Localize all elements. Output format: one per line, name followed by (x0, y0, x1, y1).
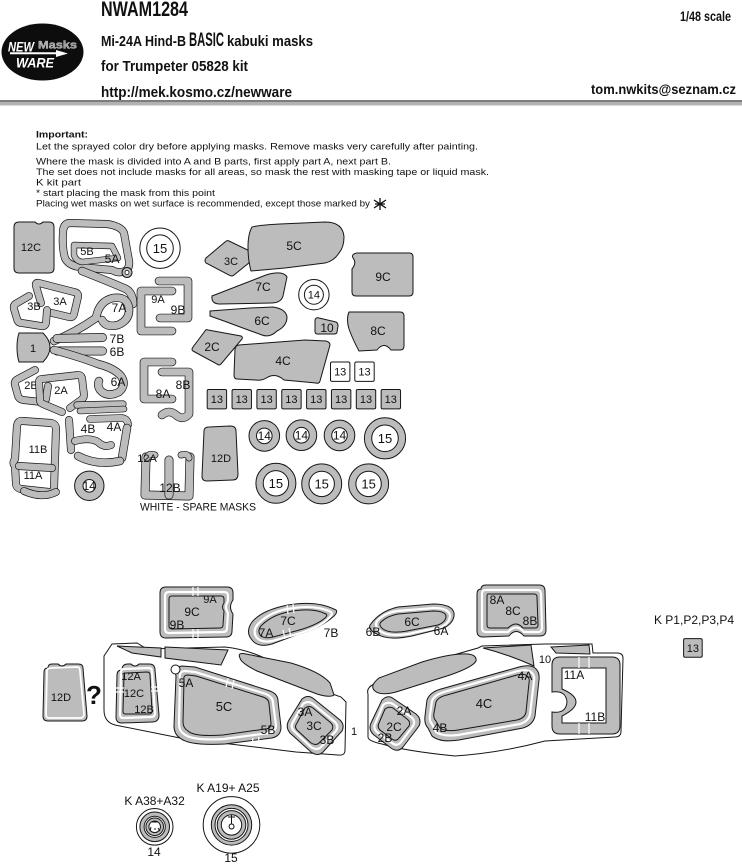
svg-text:8B: 8B (523, 614, 538, 628)
svg-text:13: 13 (260, 394, 272, 406)
svg-text:13: 13 (358, 367, 370, 379)
svg-text:11A: 11A (564, 668, 584, 682)
svg-text:Where the mask is divided into: Where the mask is divided into A and B p… (36, 157, 391, 167)
svg-text:4C: 4C (476, 696, 493, 711)
svg-text:Mi-24A Hind-B: Mi-24A Hind-B (101, 33, 186, 50)
svg-text:for Trumpeter 05828 kit: for Trumpeter 05828 kit (101, 58, 248, 75)
svg-text:7C: 7C (280, 614, 296, 628)
svg-text:9C: 9C (184, 605, 200, 619)
svg-text:2A: 2A (54, 385, 68, 397)
svg-text:3B: 3B (320, 733, 335, 747)
svg-text:WHITE - SPARE MASKS: WHITE - SPARE MASKS (140, 502, 256, 514)
svg-text:2A: 2A (397, 704, 412, 718)
svg-text:13: 13 (285, 394, 297, 406)
svg-text:kabuki masks: kabuki masks (227, 33, 313, 50)
svg-text:12D: 12D (51, 692, 71, 704)
svg-text:13: 13 (236, 394, 248, 406)
svg-text:13: 13 (334, 367, 346, 379)
svg-text:14: 14 (333, 429, 347, 443)
svg-text:8A: 8A (156, 387, 171, 401)
svg-text:K P1,P2,P3,P4: K P1,P2,P3,P4 (654, 613, 734, 627)
svg-text:9A: 9A (151, 294, 165, 306)
svg-text:6A: 6A (111, 375, 126, 389)
svg-text:14: 14 (258, 429, 272, 443)
svg-text:Important:: Important: (36, 130, 88, 140)
svg-text:4C: 4C (275, 354, 291, 368)
svg-text:15: 15 (378, 431, 392, 446)
svg-text:13: 13 (687, 643, 699, 655)
svg-text:10: 10 (539, 654, 551, 666)
svg-text:1/48 scale: 1/48 scale (680, 8, 731, 24)
svg-text:3C: 3C (306, 719, 322, 733)
svg-text:4B: 4B (81, 422, 96, 436)
svg-text:14: 14 (83, 479, 97, 493)
svg-text:12B: 12B (159, 481, 180, 495)
svg-text:6C: 6C (404, 615, 420, 629)
svg-text:4B: 4B (433, 721, 448, 735)
svg-text:Placing wet masks on wet surfa: Placing wet masks on wet surface is reco… (36, 199, 370, 209)
svg-text:1: 1 (30, 343, 36, 355)
svg-text:12A: 12A (137, 453, 157, 465)
svg-text:9B: 9B (171, 303, 186, 317)
svg-text:7A: 7A (112, 301, 127, 315)
svg-text:14: 14 (308, 290, 320, 302)
svg-text:BASIC: BASIC (189, 30, 224, 51)
svg-text:4A: 4A (518, 669, 533, 683)
svg-text:K A19+ A25: K A19+ A25 (196, 781, 259, 795)
svg-text:14: 14 (295, 429, 309, 443)
svg-text:13: 13 (360, 394, 372, 406)
svg-text:3A: 3A (53, 296, 67, 308)
svg-text:1: 1 (351, 726, 357, 738)
svg-text:3A: 3A (298, 705, 313, 719)
svg-text:11B: 11B (29, 444, 48, 456)
svg-text:12D: 12D (211, 453, 231, 465)
svg-text:11A: 11A (24, 470, 43, 482)
svg-text:8B: 8B (176, 378, 191, 392)
svg-text:8C: 8C (370, 324, 386, 338)
svg-text:13: 13 (335, 394, 347, 406)
svg-text:15: 15 (224, 851, 238, 865)
svg-text:tom.nwkits@seznam.cz: tom.nwkits@seznam.cz (591, 82, 736, 97)
svg-text:NEW: NEW (8, 40, 35, 55)
svg-text:13: 13 (385, 394, 397, 406)
svg-text:http://mek.kosmo.cz/newware: http://mek.kosmo.cz/newware (101, 84, 292, 101)
svg-text:10: 10 (320, 321, 334, 335)
svg-text:3C: 3C (224, 256, 238, 268)
svg-text:?: ? (86, 680, 102, 710)
svg-text:15: 15 (269, 476, 283, 491)
svg-text:4A: 4A (107, 420, 122, 434)
svg-text:Let the sprayed color dry befo: Let the sprayed color dry before applyin… (36, 142, 478, 152)
svg-text:15: 15 (314, 477, 328, 492)
svg-text:Masks: Masks (38, 40, 77, 52)
svg-text:WARE: WARE (16, 55, 55, 71)
svg-text:7C: 7C (255, 280, 271, 294)
svg-text:9B: 9B (170, 618, 185, 632)
svg-text:7B: 7B (324, 626, 339, 640)
svg-text:* start placing the mask from: * start placing the mask from this point (36, 188, 215, 198)
svg-text:6B: 6B (366, 625, 381, 639)
svg-text:5C: 5C (286, 239, 302, 253)
svg-text:NWAM1284: NWAM1284 (101, 0, 188, 21)
svg-text:14: 14 (147, 845, 161, 859)
svg-text:5B: 5B (261, 723, 276, 737)
svg-text:6A: 6A (434, 624, 449, 638)
svg-text:11B: 11B (585, 710, 605, 724)
svg-text:9A: 9A (203, 594, 217, 606)
svg-text:6B: 6B (110, 345, 125, 359)
svg-text:K A38+A32: K A38+A32 (124, 794, 185, 808)
svg-text:12C: 12C (124, 688, 144, 700)
svg-text:5B: 5B (80, 246, 93, 258)
svg-text:2B: 2B (378, 731, 393, 745)
svg-text:8A: 8A (490, 593, 505, 607)
svg-text:12B: 12B (134, 704, 154, 716)
svg-text:12C: 12C (21, 242, 41, 254)
svg-text:8C: 8C (505, 604, 521, 618)
svg-text:7A: 7A (259, 626, 274, 640)
svg-text:7B: 7B (110, 332, 125, 346)
svg-text:The set does not include masks: The set does not include masks for all a… (36, 167, 489, 177)
svg-text:5C: 5C (216, 699, 233, 714)
svg-text:K kit part: K kit part (36, 178, 82, 188)
svg-text:6C: 6C (254, 314, 270, 328)
svg-text:9C: 9C (375, 270, 391, 284)
svg-text:15: 15 (153, 241, 167, 256)
svg-text:3B: 3B (27, 301, 40, 313)
svg-text:2C: 2C (204, 340, 220, 354)
svg-text:5A: 5A (105, 252, 120, 266)
svg-text:13: 13 (211, 394, 223, 406)
svg-text:13: 13 (310, 394, 322, 406)
svg-text:5A: 5A (179, 676, 194, 690)
svg-text:15: 15 (361, 477, 375, 492)
svg-text:12A: 12A (121, 671, 141, 683)
